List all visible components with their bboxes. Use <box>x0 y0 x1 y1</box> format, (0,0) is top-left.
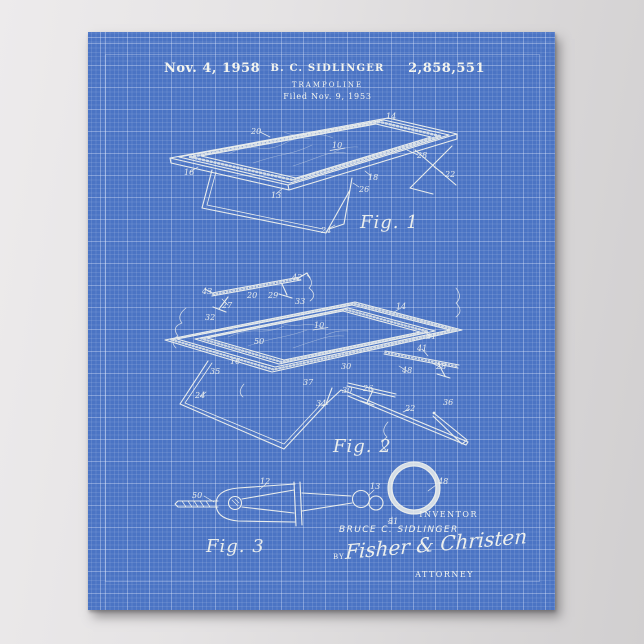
ring-inner <box>392 466 436 510</box>
ref-numeral: 24 <box>194 391 205 400</box>
attorney-caption: ATTORNEY <box>386 570 474 579</box>
ref-numeral: 14 <box>386 112 396 121</box>
ref-numeral: 35 <box>210 367 220 376</box>
ref-numeral: 31 <box>426 332 436 341</box>
ref-numeral: 10 <box>314 321 324 330</box>
ref-numeral: 48 <box>401 366 412 375</box>
ref-numeral: 50 <box>192 491 202 500</box>
ref-numeral: 26 <box>362 384 373 393</box>
eye-hatch <box>232 499 239 506</box>
ref-numeral: 24 <box>320 226 331 235</box>
ref-numeral: 50 <box>254 337 264 346</box>
patent-poster: Nov. 4, 1958 B. C. SIDLINGER 2,858,551 T… <box>88 32 555 610</box>
ring-hatch-band <box>390 464 438 512</box>
ref-numeral: 28 <box>416 151 427 160</box>
ref-numeral: 22 <box>404 404 415 413</box>
ref-numeral: 20 <box>246 291 257 300</box>
poster-mockup-scene: Nov. 4, 1958 B. C. SIDLINGER 2,858,551 T… <box>0 0 644 644</box>
left-u-leg-inner <box>185 363 322 444</box>
inventor-caption: INVENTOR <box>388 510 478 519</box>
ref-numeral: 26 <box>358 185 369 194</box>
ref-numeral: 41 <box>416 344 427 353</box>
ref-numeral: 30 <box>342 386 352 395</box>
ref-numeral: 29 <box>267 291 278 300</box>
ref-numeral: 13 <box>370 482 380 491</box>
inner-funnel <box>242 490 294 513</box>
figure-2-caption: Fig. 2 <box>332 436 392 457</box>
ref-numeral: 14 <box>396 302 406 311</box>
ref-numeral: 22 <box>444 170 455 179</box>
ref-numeral: 32 <box>205 313 215 322</box>
ref-numeral: 12 <box>260 477 270 486</box>
ref-numeral: 36 <box>443 398 453 407</box>
by-label: BY <box>333 553 345 561</box>
ref-numeral: 20 <box>250 127 261 136</box>
figure-1-caption: Fig. 1 <box>359 212 419 233</box>
ref-numeral: 16 <box>184 168 194 177</box>
ref-numeral: 43 <box>201 287 212 296</box>
ref-numeral: 27 <box>221 301 233 310</box>
leader-lines <box>200 275 440 412</box>
ref-numeral: 42 <box>291 273 302 282</box>
ref-numeral: 18 <box>368 173 378 182</box>
hook-loop-a <box>353 491 370 508</box>
hook-loop-b <box>369 496 383 510</box>
patent-drawing: Fig. 1 Fig. 2 Fig. 3 20 14 10 28 22 16 1… <box>88 32 555 610</box>
ref-numeral: 34 <box>316 399 326 408</box>
ref-numeral: 16 <box>230 357 240 366</box>
left-u-leg <box>180 361 332 449</box>
ref-numeral: 37 <box>303 378 314 387</box>
plate <box>294 482 302 526</box>
figure-2-trampoline-exploded <box>165 273 468 450</box>
ref-numeral: 30 <box>341 362 351 371</box>
ref-numeral: 13 <box>271 191 281 200</box>
detached-right-rails <box>347 351 459 405</box>
ref-numeral: 33 <box>295 297 305 306</box>
figure-3-caption: Fig. 3 <box>205 536 265 557</box>
ref-numeral: 28 <box>435 362 446 371</box>
shaft-hatching <box>182 501 210 507</box>
ref-numeral: 10 <box>332 141 342 150</box>
ref-numeral: 48 <box>437 477 448 486</box>
cone-body <box>216 484 295 522</box>
neck <box>302 493 352 511</box>
shaft <box>175 501 218 507</box>
